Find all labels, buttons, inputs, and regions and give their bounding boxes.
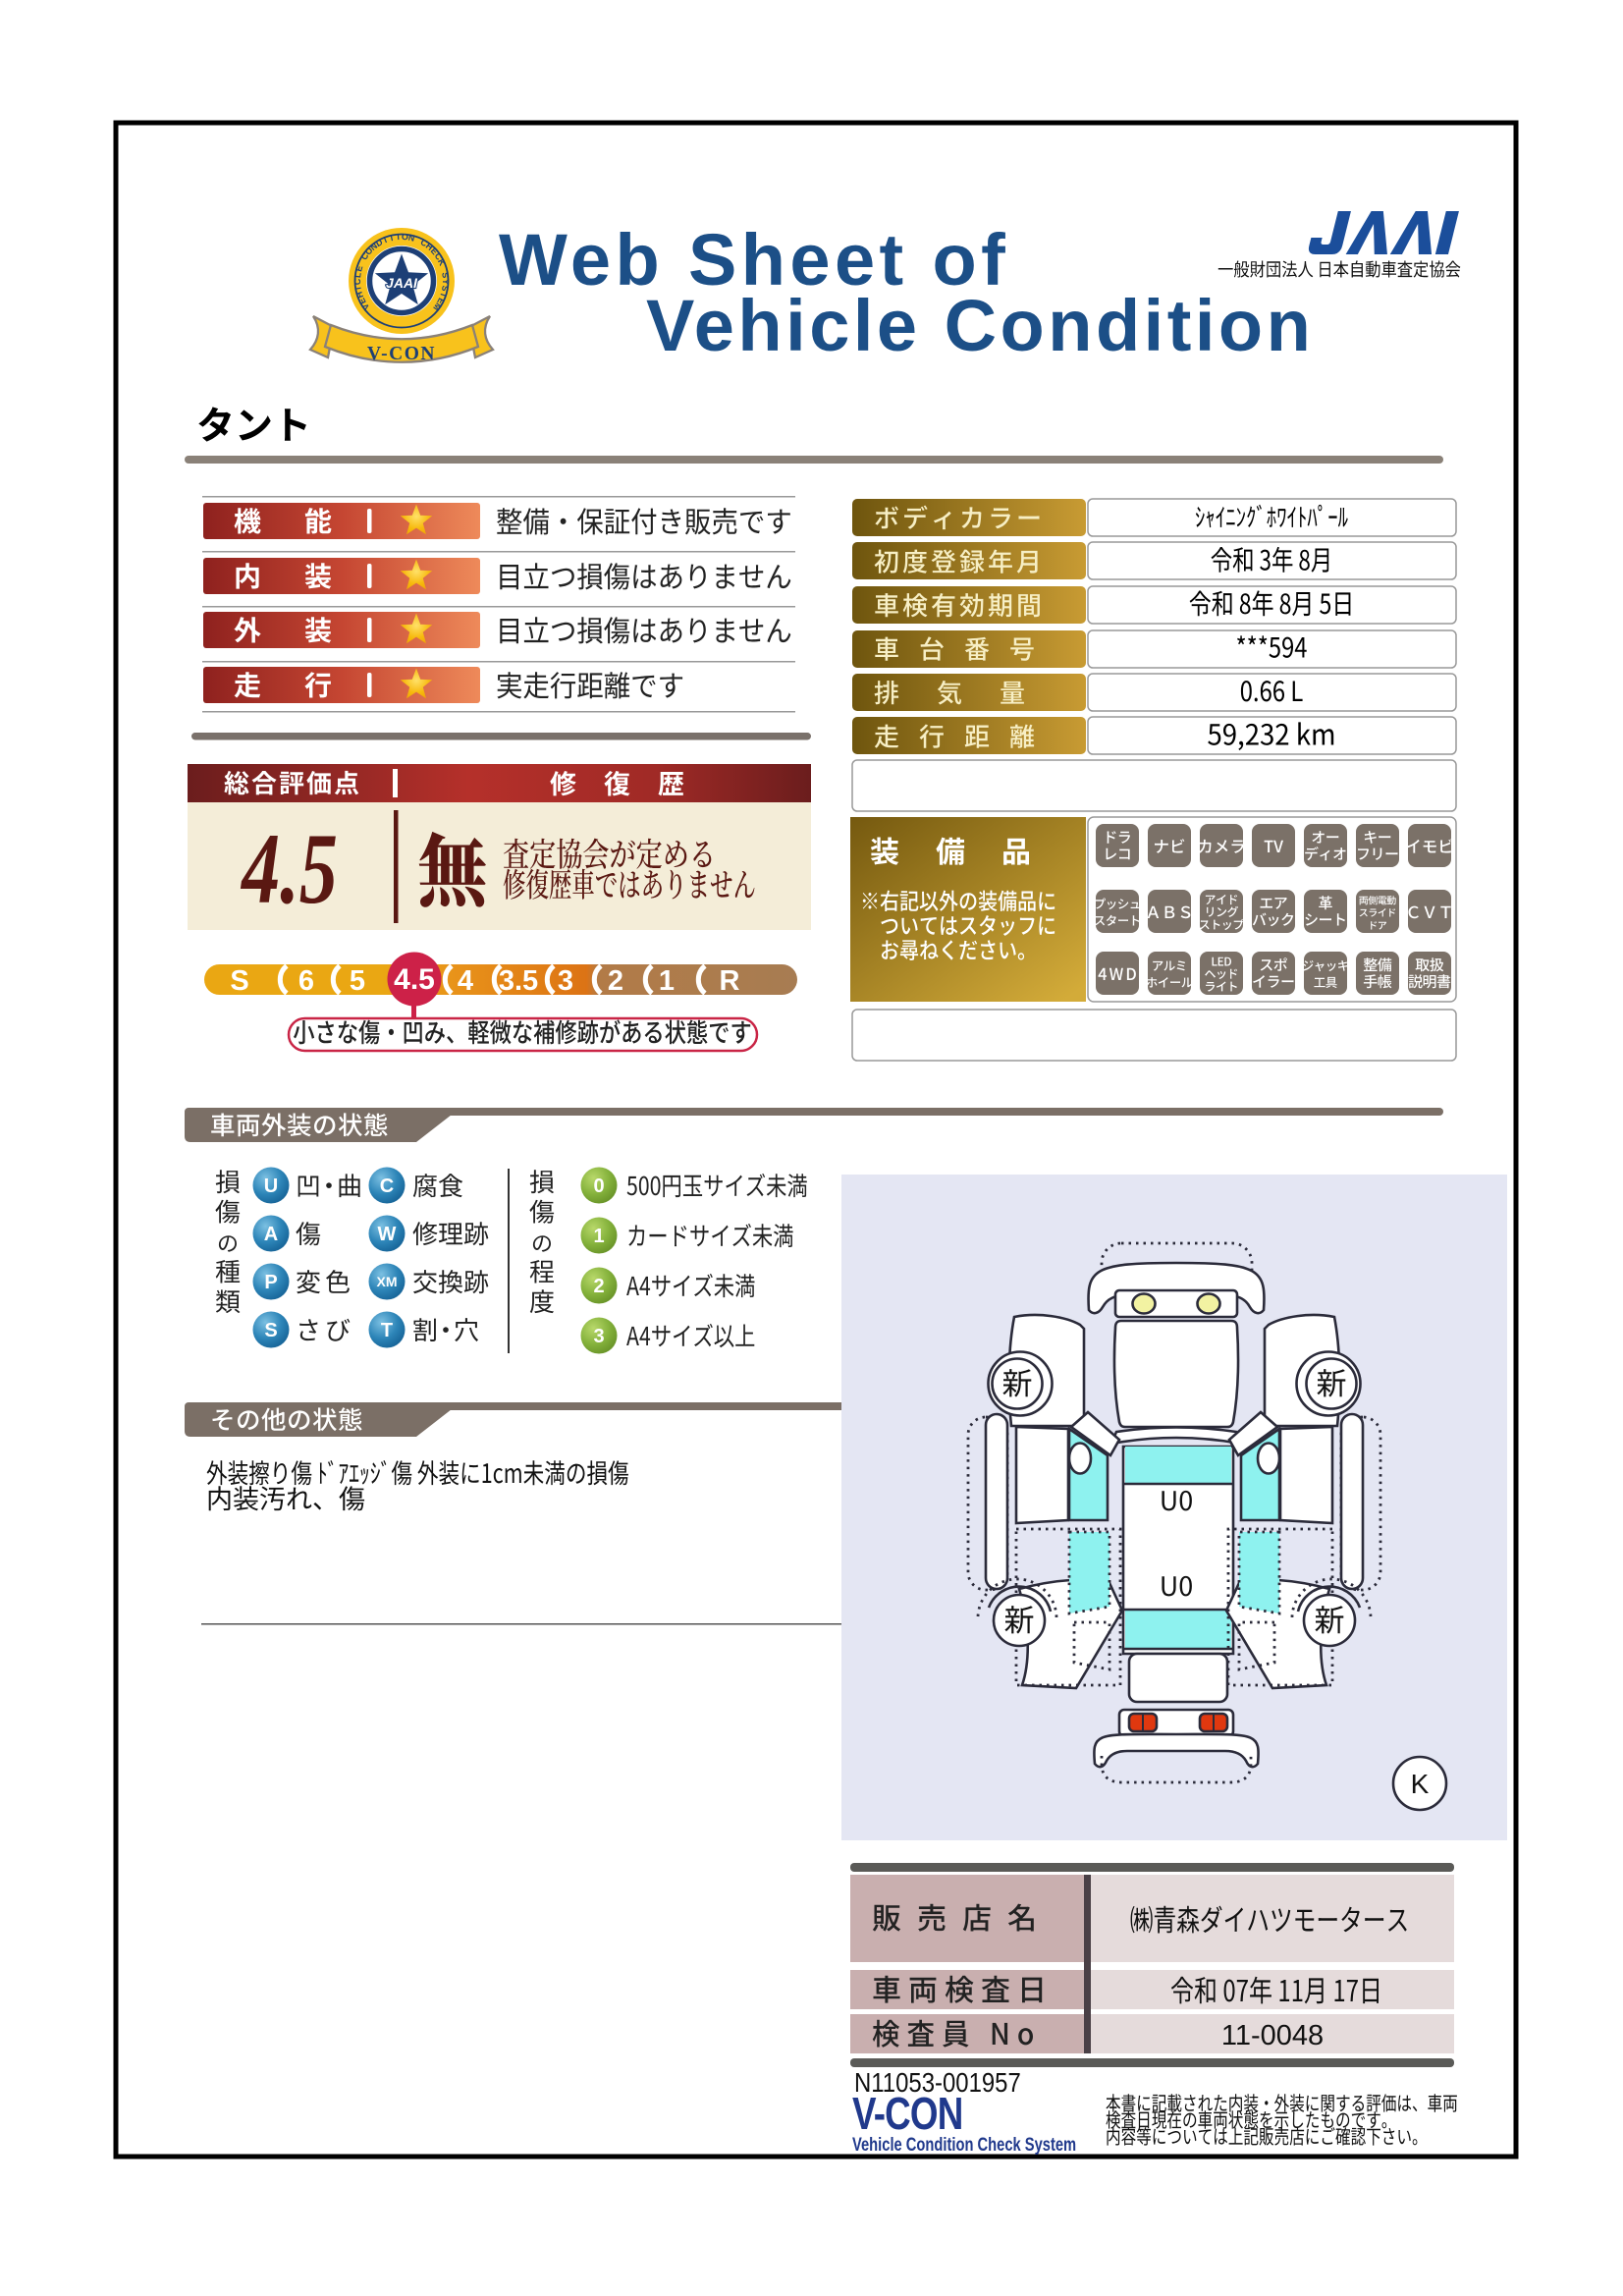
svg-text:V-CON: V-CON xyxy=(367,344,436,364)
svg-text:U: U xyxy=(264,1175,278,1197)
svg-text:W: W xyxy=(378,1224,397,1245)
svg-text:1: 1 xyxy=(593,1226,604,1247)
svg-text:2: 2 xyxy=(593,1276,604,1297)
svg-text:2: 2 xyxy=(608,965,623,997)
svg-text:4.5: 4.5 xyxy=(394,963,435,996)
svg-text:11-0048: 11-0048 xyxy=(1221,2020,1324,2051)
svg-text:6: 6 xyxy=(298,965,314,997)
svg-text:S: S xyxy=(230,965,248,997)
svg-text:V-CON: V-CON xyxy=(852,2088,963,2139)
svg-text:Vehicle Condition Check System: Vehicle Condition Check System xyxy=(852,2133,1076,2156)
svg-text:4.5: 4.5 xyxy=(240,812,338,925)
svg-text:P: P xyxy=(264,1272,277,1293)
svg-text:T: T xyxy=(381,1320,393,1341)
svg-text:3.5: 3.5 xyxy=(499,965,538,997)
svg-text:1: 1 xyxy=(659,965,675,997)
svg-text:XM: XM xyxy=(377,1274,398,1289)
svg-text:C: C xyxy=(380,1175,394,1197)
svg-text:JAAI: JAAI xyxy=(386,275,418,291)
svg-text:A: A xyxy=(264,1224,278,1245)
svg-text:5: 5 xyxy=(350,965,365,997)
svg-text:3: 3 xyxy=(558,965,573,997)
svg-text:4: 4 xyxy=(458,965,473,997)
svg-text:K: K xyxy=(1411,1769,1430,1799)
svg-text:R: R xyxy=(720,965,740,997)
svg-text:S: S xyxy=(264,1320,277,1341)
svg-text:Vehicle Condition: Vehicle Condition xyxy=(646,285,1314,366)
svg-text:3: 3 xyxy=(593,1326,604,1347)
svg-text:0: 0 xyxy=(593,1175,604,1197)
